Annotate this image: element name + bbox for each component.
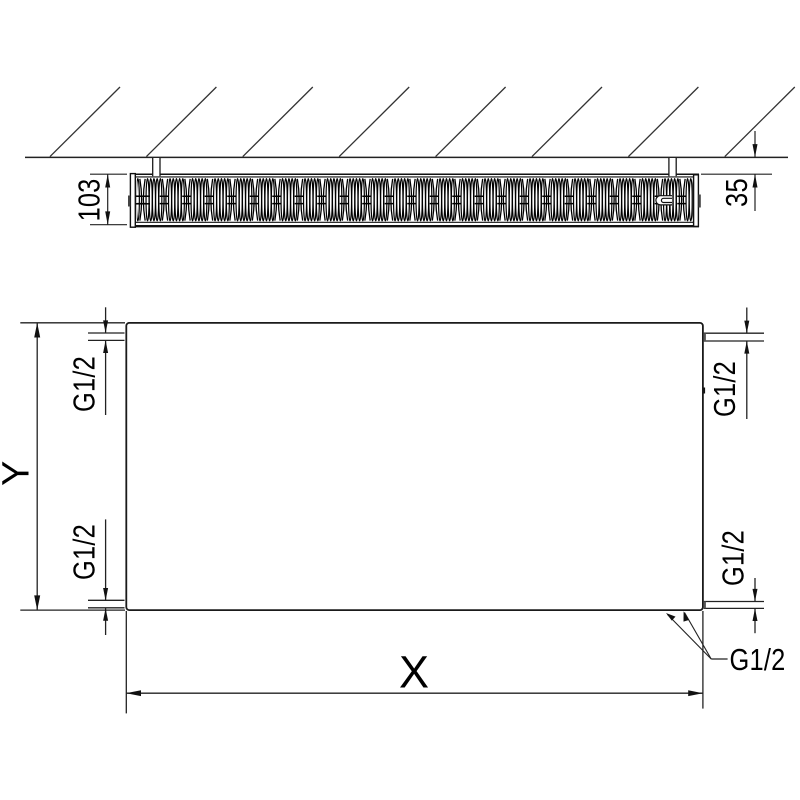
svg-text:G1/2: G1/2	[716, 530, 751, 586]
svg-text:G1/2: G1/2	[730, 643, 786, 678]
svg-text:G1/2: G1/2	[708, 361, 743, 417]
svg-text:Y: Y	[0, 461, 38, 486]
svg-text:35: 35	[720, 178, 755, 207]
svg-text:X: X	[399, 647, 429, 698]
svg-text:G1/2: G1/2	[67, 356, 102, 412]
svg-text:103: 103	[72, 179, 107, 222]
svg-text:G1/2: G1/2	[67, 524, 102, 580]
